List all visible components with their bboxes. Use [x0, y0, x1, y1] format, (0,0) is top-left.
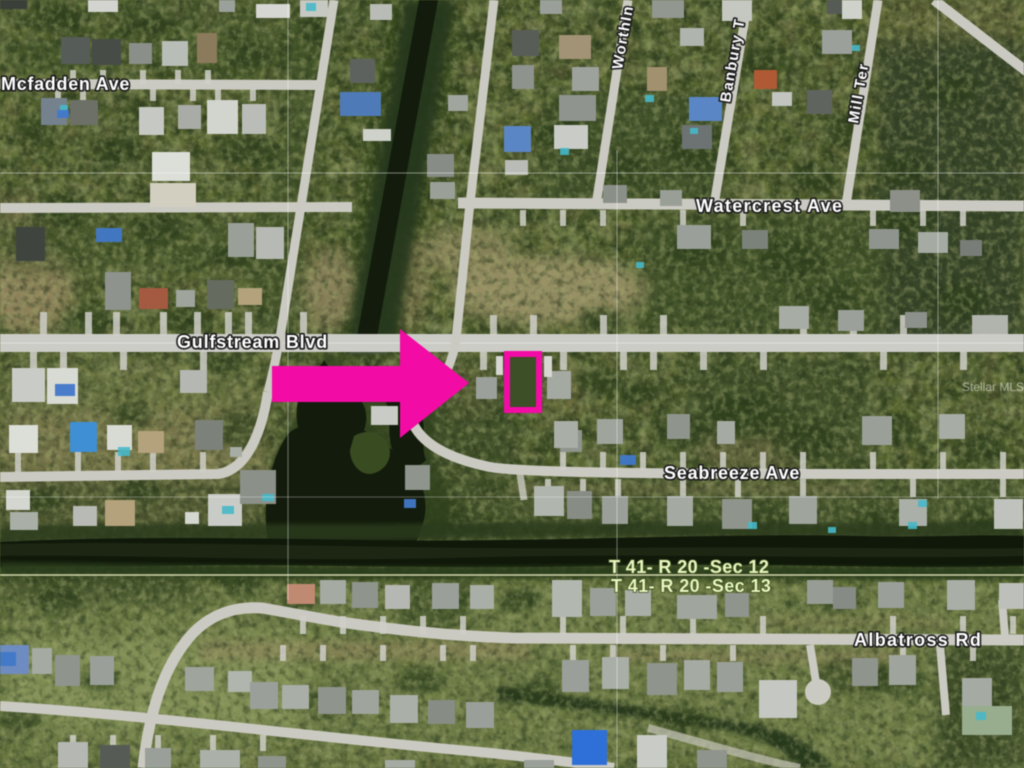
svg-text:Seabreeze Ave: Seabreeze Ave	[664, 463, 800, 483]
svg-text:Mcfadden Ave: Mcfadden Ave	[1, 74, 130, 94]
svg-text:T 41- R 20 -Sec 12: T 41- R 20 -Sec 12	[609, 557, 769, 577]
svg-text:Gulfstream Blvd: Gulfstream Blvd	[177, 332, 328, 352]
svg-text:Stellar MLS: Stellar MLS	[962, 380, 1024, 394]
svg-text:Albatross Rd: Albatross Rd	[854, 630, 982, 650]
svg-text:T 41- R 20 -Sec 13: T 41- R 20 -Sec 13	[611, 576, 771, 596]
svg-text:Watercrest Ave: Watercrest Ave	[696, 196, 843, 216]
